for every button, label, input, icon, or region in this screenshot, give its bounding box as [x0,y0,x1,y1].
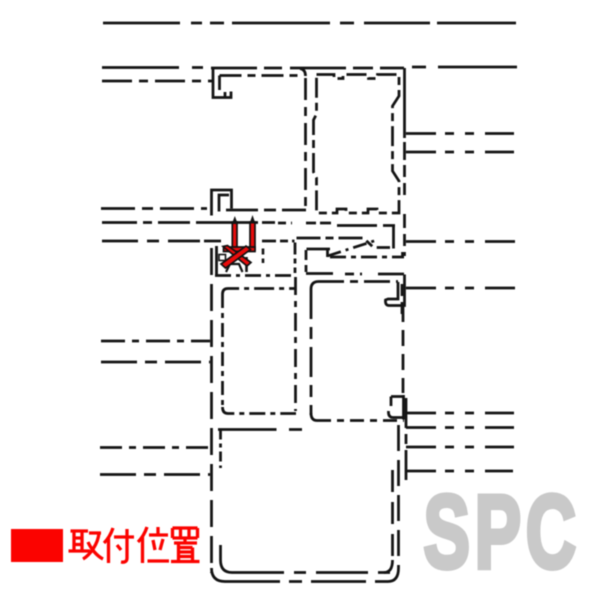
svg-text:SPC: SPC [423,474,580,590]
